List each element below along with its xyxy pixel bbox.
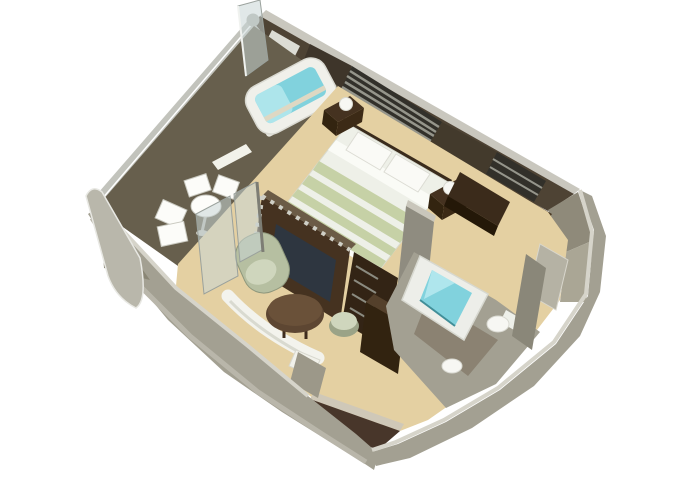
floor-plan-canvas [0, 0, 680, 486]
table-lamp [340, 98, 353, 111]
glass-panel [196, 196, 238, 294]
sink [442, 359, 462, 373]
ottoman [329, 312, 359, 337]
floor-plan-rendering [0, 0, 680, 486]
